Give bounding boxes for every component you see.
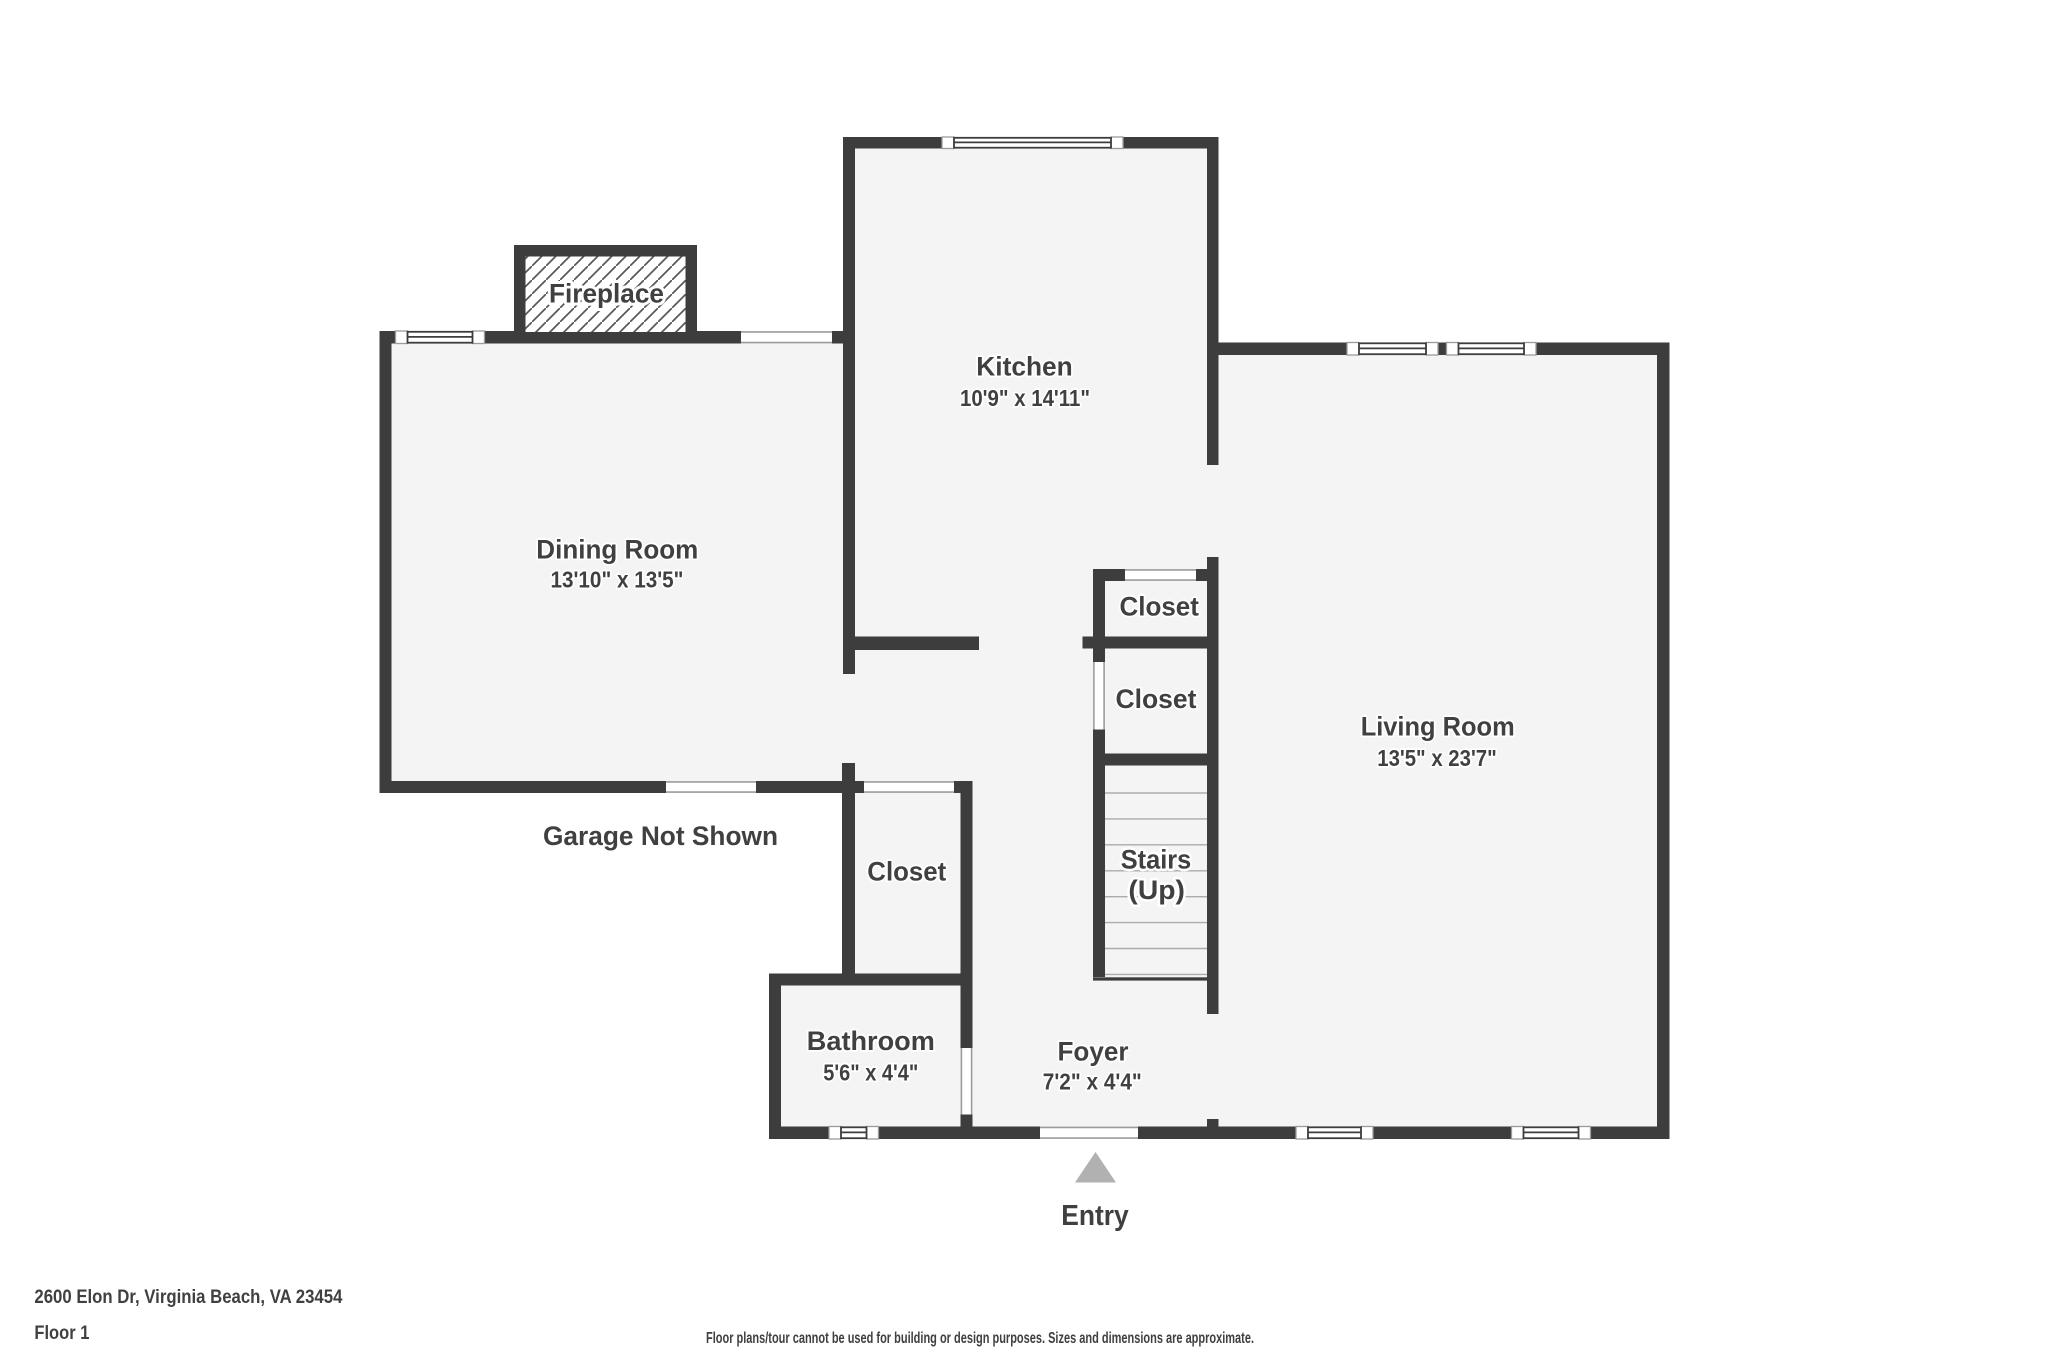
- svg-text:Floor 1: Floor 1: [34, 1323, 89, 1344]
- svg-text:Stairs: Stairs: [1121, 845, 1192, 875]
- svg-text:Fireplace: Fireplace: [549, 279, 664, 309]
- svg-text:Closet: Closet: [1116, 684, 1197, 714]
- svg-text:Closet: Closet: [867, 857, 946, 887]
- svg-text:Bathroom: Bathroom: [807, 1026, 935, 1056]
- svg-text:Kitchen: Kitchen: [976, 352, 1073, 382]
- svg-text:(Up): (Up): [1128, 875, 1185, 905]
- svg-text:Entry: Entry: [1061, 1200, 1129, 1232]
- svg-text:Living Room: Living Room: [1361, 711, 1515, 741]
- svg-text:2600 Elon Dr, Virginia Beach,: 2600 Elon Dr, Virginia Beach, VA 23454: [34, 1287, 342, 1308]
- svg-text:13'5" x 23'7": 13'5" x 23'7": [1377, 745, 1497, 771]
- svg-text:7'2" x 4'4": 7'2" x 4'4": [1043, 1069, 1142, 1095]
- svg-text:Foyer: Foyer: [1058, 1037, 1129, 1067]
- svg-text:Dining Room: Dining Room: [536, 534, 698, 564]
- svg-text:Garage Not Shown: Garage Not Shown: [543, 821, 778, 851]
- svg-text:5'6" x 4'4": 5'6" x 4'4": [823, 1060, 918, 1086]
- svg-text:13'10" x 13'5": 13'10" x 13'5": [551, 567, 684, 593]
- svg-text:Floor plans/tour cannot be use: Floor plans/tour cannot be used for buil…: [706, 1330, 1254, 1347]
- svg-text:Closet: Closet: [1119, 592, 1199, 622]
- svg-text:10'9" x 14'11": 10'9" x 14'11": [960, 385, 1090, 411]
